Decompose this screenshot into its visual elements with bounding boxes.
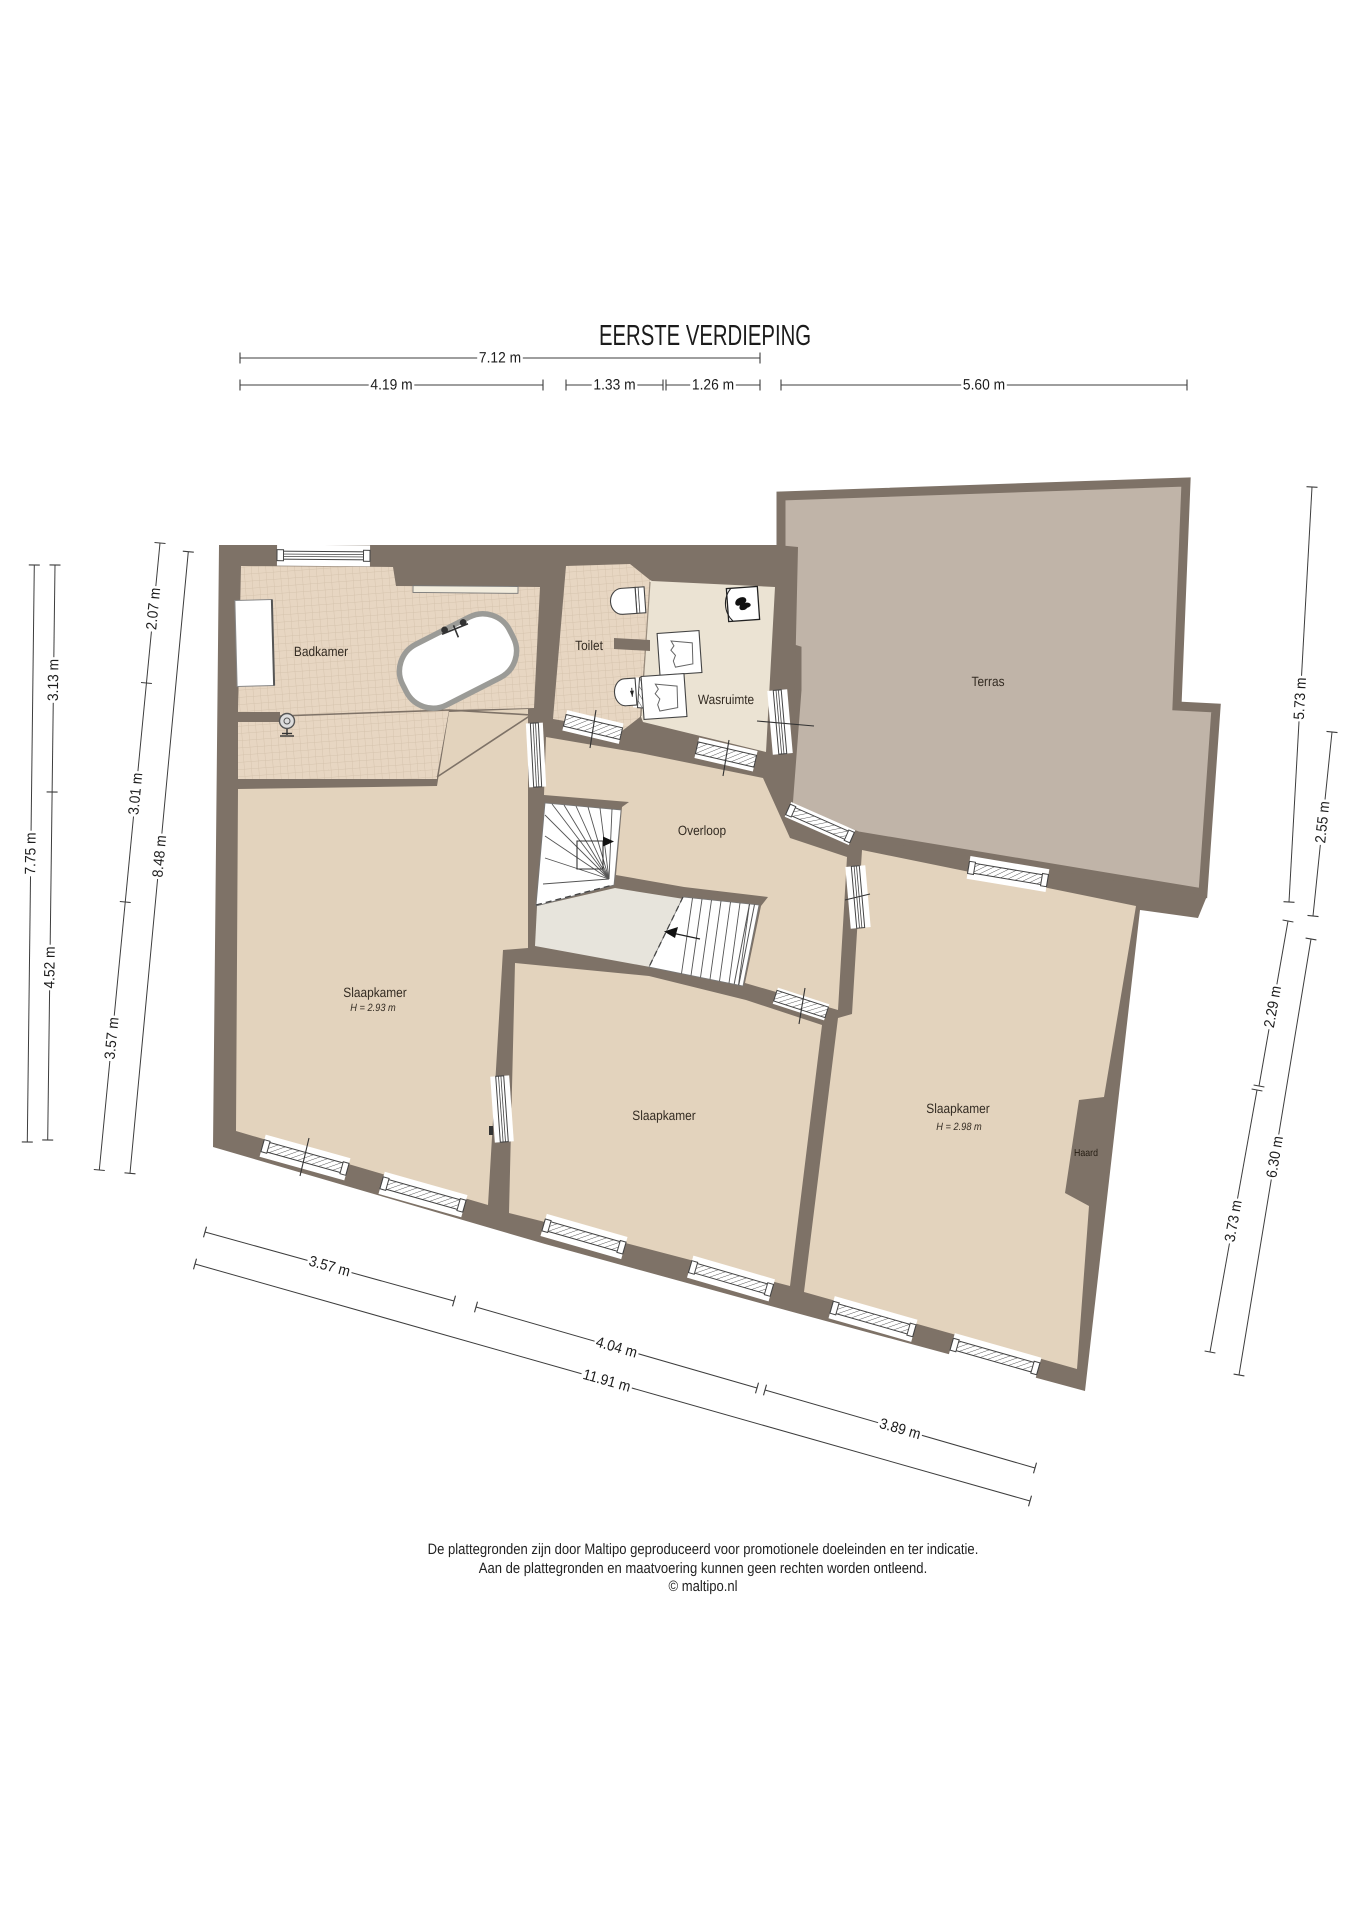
- svg-text:4.19 m: 4.19 m: [370, 377, 412, 394]
- svg-text:5.73 m: 5.73 m: [1291, 677, 1310, 720]
- svg-text:Slaapkamer: Slaapkamer: [632, 1108, 696, 1123]
- svg-text:Overloop: Overloop: [678, 823, 726, 838]
- svg-text:De plattegronden zijn door Mal: De plattegronden zijn door Maltipo gepro…: [428, 1541, 979, 1558]
- svg-text:Slaapkamer: Slaapkamer: [343, 985, 407, 1000]
- svg-text:Badkamer: Badkamer: [294, 644, 349, 659]
- svg-text:H = 2.93 m: H = 2.93 m: [350, 1002, 396, 1014]
- svg-text:Haard: Haard: [1074, 1148, 1098, 1159]
- svg-text:H = 2.98 m: H = 2.98 m: [936, 1121, 982, 1133]
- svg-text:Toilet: Toilet: [575, 638, 603, 653]
- svg-text:Slaapkamer: Slaapkamer: [926, 1101, 990, 1116]
- svg-text:Aan de plattegronden en maatvo: Aan de plattegronden en maatvoering kunn…: [479, 1560, 927, 1577]
- svg-text:5.60 m: 5.60 m: [963, 377, 1005, 394]
- svg-text:Wasruimte: Wasruimte: [698, 692, 754, 707]
- svg-text:Terras: Terras: [971, 674, 1004, 689]
- svg-text:© maltipo.nl: © maltipo.nl: [668, 1578, 737, 1595]
- svg-text:4.52 m: 4.52 m: [41, 946, 59, 988]
- svg-text:3.13 m: 3.13 m: [45, 659, 63, 701]
- svg-text:7.12 m: 7.12 m: [479, 350, 521, 367]
- svg-text:1.26 m: 1.26 m: [692, 377, 734, 394]
- svg-text:7.75 m: 7.75 m: [22, 832, 40, 874]
- svg-text:EERSTE VERDIEPING: EERSTE VERDIEPING: [599, 320, 811, 352]
- svg-text:1.33 m: 1.33 m: [593, 377, 635, 394]
